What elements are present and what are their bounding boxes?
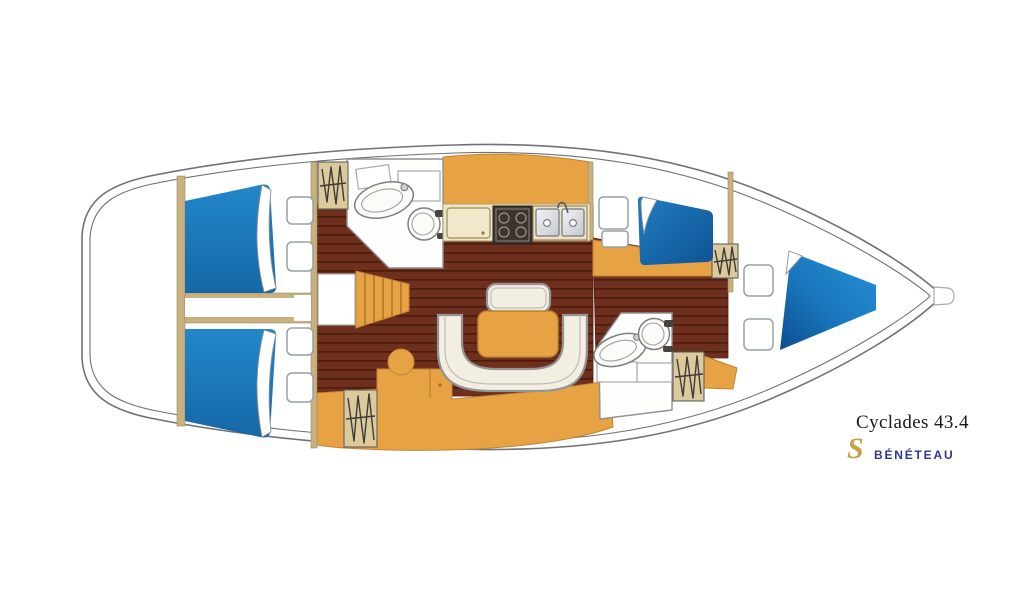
boat-floorplan-page: Cyclades 43.4 S BÉNÉTEAU xyxy=(0,0,1024,600)
engine-box xyxy=(318,274,355,325)
saloon-table xyxy=(478,311,558,357)
beneteau-logo-icon: S xyxy=(847,434,864,464)
model-name: Cyclades 43.4 xyxy=(856,412,1024,434)
wardrobe-icon xyxy=(318,162,348,209)
toilet-icon xyxy=(408,208,446,240)
icebox-icon xyxy=(447,208,490,238)
berth-cushion xyxy=(287,328,313,355)
wardrobe-icon xyxy=(712,244,738,278)
stove-icon xyxy=(493,206,532,244)
berth-cushion xyxy=(744,265,773,296)
galley-sink-icon xyxy=(533,203,587,240)
galley xyxy=(443,203,590,244)
cabinet-handle xyxy=(438,383,441,386)
berth-cushion xyxy=(602,231,628,247)
berth-cushion xyxy=(599,197,628,229)
berth-cushion xyxy=(287,373,313,402)
berth-cushion xyxy=(287,197,313,224)
aft-bulkhead xyxy=(177,176,185,426)
bow-fitting-icon xyxy=(934,287,954,305)
stool-icon xyxy=(388,349,414,375)
aft-cabin-door-gap xyxy=(294,295,311,321)
brand-name: BÉNÉTEAU xyxy=(874,448,954,462)
berth-cushion xyxy=(744,319,773,350)
boat-floorplan-svg xyxy=(0,0,1024,600)
galley-back-counter xyxy=(443,154,590,207)
wardrobe-icon xyxy=(344,390,377,447)
wardrobe-icon xyxy=(673,352,704,401)
berth-cushion xyxy=(287,242,313,271)
